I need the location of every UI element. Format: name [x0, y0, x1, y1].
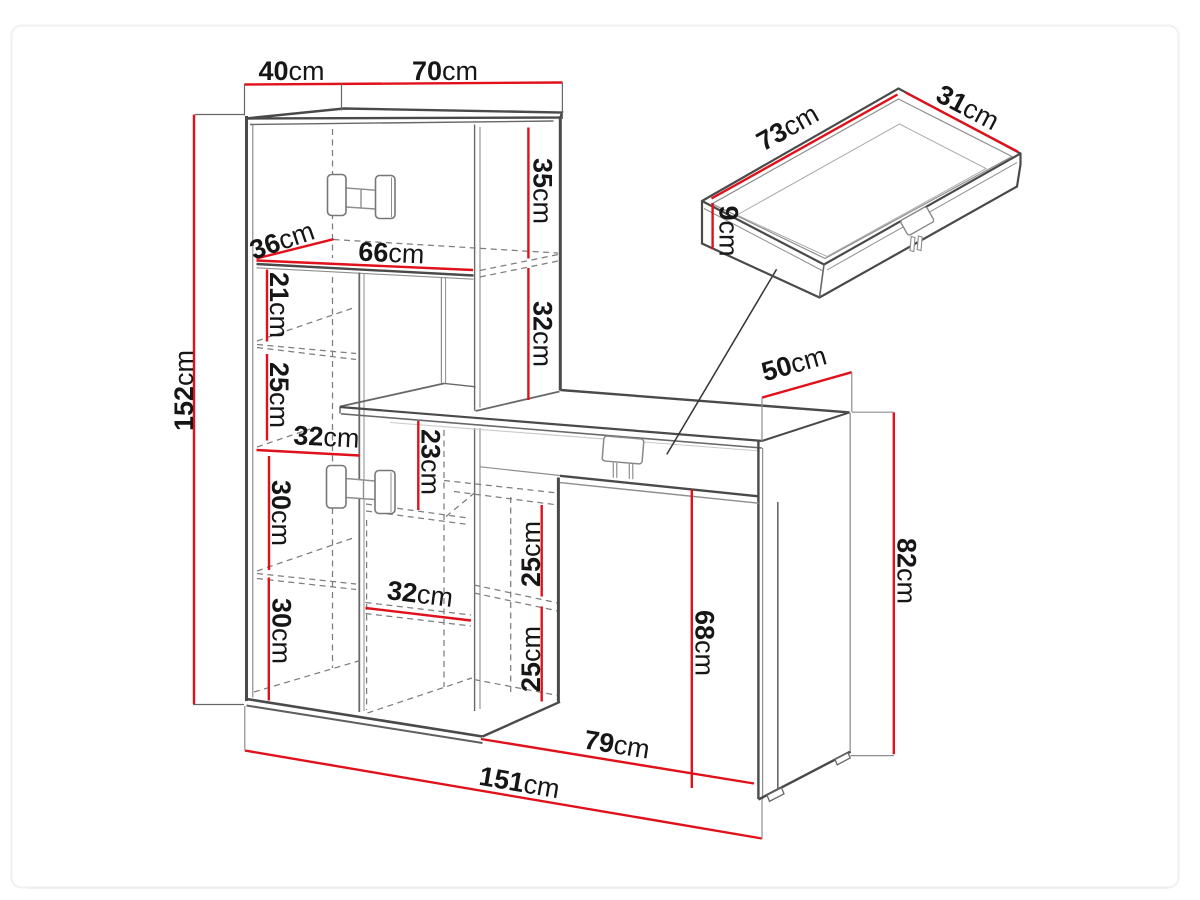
svg-text:35cm: 35cm — [528, 158, 558, 224]
svg-text:152cm: 152cm — [169, 350, 199, 431]
svg-text:82cm: 82cm — [891, 538, 921, 604]
svg-text:70cm: 70cm — [412, 56, 478, 86]
svg-text:32cm: 32cm — [528, 301, 558, 367]
svg-text:30cm: 30cm — [266, 480, 296, 546]
svg-text:9cm: 9cm — [714, 206, 744, 257]
svg-text:23cm: 23cm — [415, 429, 445, 495]
svg-text:66cm: 66cm — [358, 237, 425, 270]
svg-text:30cm: 30cm — [266, 598, 296, 664]
svg-text:25cm: 25cm — [516, 521, 546, 587]
svg-text:32cm: 32cm — [293, 420, 361, 453]
svg-text:68cm: 68cm — [689, 610, 719, 676]
svg-text:25cm: 25cm — [516, 626, 546, 692]
svg-text:21cm: 21cm — [264, 272, 294, 338]
svg-text:40cm: 40cm — [258, 56, 324, 86]
svg-text:25cm: 25cm — [264, 362, 294, 428]
